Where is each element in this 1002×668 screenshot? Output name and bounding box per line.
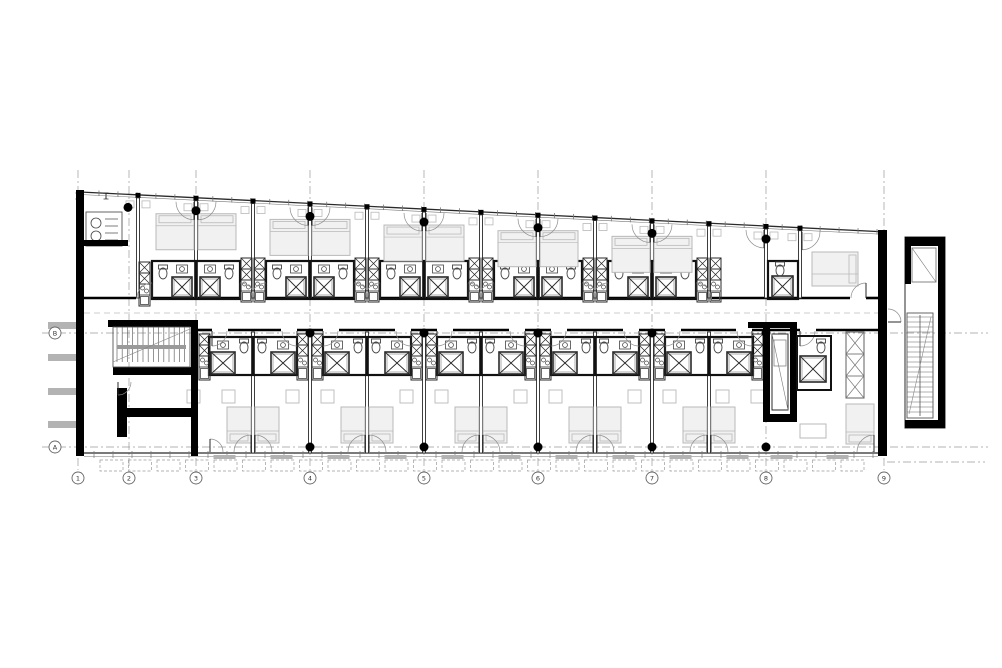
svg-text:6: 6: [536, 475, 540, 483]
svg-text:7: 7: [650, 475, 654, 483]
svg-text:2: 2: [127, 475, 131, 483]
svg-text:5: 5: [422, 475, 426, 483]
floor-plan-sheet: 123456789AB: [0, 0, 1002, 668]
grid-bubble-column-6: 6: [532, 472, 544, 484]
grid-bubble-column-2: 2: [123, 472, 135, 484]
balcony-panels: [100, 460, 864, 471]
svg-text:1: 1: [76, 475, 80, 483]
grid-bubble-row-A: A: [49, 441, 61, 453]
svg-text:9: 9: [882, 475, 886, 483]
floor-plan-drawing: 123456789AB: [0, 0, 1002, 668]
annex-stair-tower: [905, 237, 945, 428]
grid-bubble-column-9: 9: [878, 472, 890, 484]
svg-text:A: A: [53, 444, 58, 452]
grid-bubble-column-4: 4: [304, 472, 316, 484]
svg-text:3: 3: [194, 475, 198, 483]
svg-text:8: 8: [764, 475, 768, 483]
svg-text:B: B: [53, 330, 57, 338]
grid-bubble-row-B: B: [49, 327, 61, 339]
grid-bubble-column-1: 1: [72, 472, 84, 484]
machine-room: [78, 212, 128, 246]
grid-bubble-column-8: 8: [760, 472, 772, 484]
corner-room-fittings: [797, 332, 864, 398]
svg-text:4: 4: [308, 475, 312, 483]
grid-bubble-column-5: 5: [418, 472, 430, 484]
grid-bubble-column-7: 7: [646, 472, 658, 484]
bathroom-pods: [152, 261, 798, 375]
grid-bubble-column-3: 3: [190, 472, 202, 484]
